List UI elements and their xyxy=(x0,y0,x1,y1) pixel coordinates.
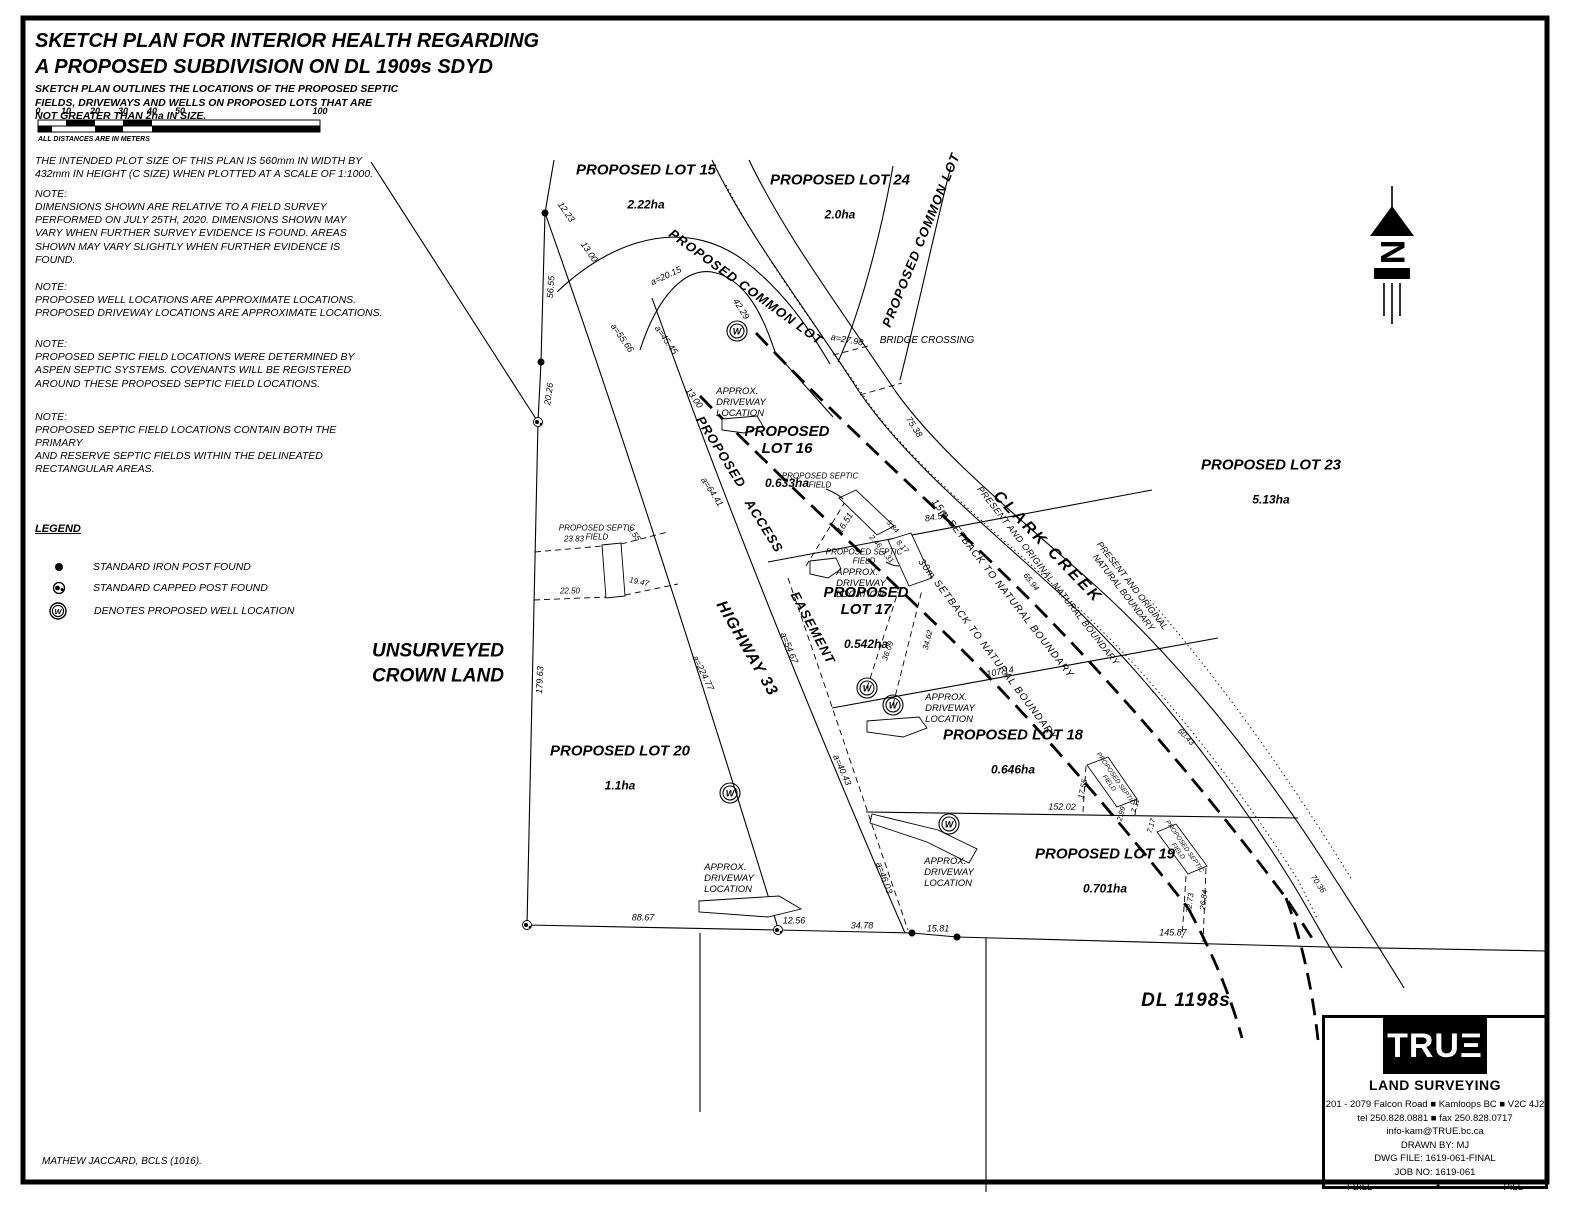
lot20-label: PROPOSED LOT 20 1.1ha xyxy=(550,726,690,811)
lot24-label: PROPOSED LOT 24 2.0ha xyxy=(770,155,910,240)
well-symbol: W xyxy=(727,321,747,341)
svg-text:N: N xyxy=(1373,240,1411,265)
lot-name: PROPOSED LOT 15 xyxy=(576,163,716,180)
legend-item: STANDARD IRON POST FOUND xyxy=(35,559,294,575)
lot16-label: PROPOSED LOT 16 0.633ha xyxy=(744,406,829,508)
measurement: 88.67 xyxy=(632,913,655,924)
measurement: 145.87 xyxy=(1159,928,1187,939)
lot-name: PROPOSED LOT 24 xyxy=(770,173,910,190)
legend: LEGEND STANDARD IRON POST FOUND STANDARD… xyxy=(35,523,294,626)
capped-post-icon xyxy=(51,580,67,596)
svg-text:W: W xyxy=(54,607,62,616)
note-heading: NOTE: xyxy=(35,338,385,351)
well-symbol: W xyxy=(883,695,903,715)
svg-text:W: W xyxy=(945,820,955,830)
lot-name: PROPOSED LOT 18 xyxy=(943,728,1083,745)
measurement: 12.56 xyxy=(783,916,806,927)
firm-email: info-kam@TRUE.bc.ca xyxy=(1325,1126,1545,1137)
note-heading: NOTE: xyxy=(35,281,385,294)
note: NOTE: DIMENSIONS SHOWN ARE RELATIVE TO A… xyxy=(35,188,385,267)
bridge-dashes xyxy=(833,345,902,395)
firm-dwg-file: DWG FILE: 1619-061-FINAL xyxy=(1325,1153,1545,1164)
well-symbol: W xyxy=(939,814,959,834)
note-body: DIMENSIONS SHOWN ARE RELATIVE TO A FIELD… xyxy=(35,201,385,267)
driveway-label-lot19: APPROX. DRIVEWAY LOCATION xyxy=(924,856,974,890)
plan-subtitle: SKETCH PLAN OUTLINES THE LOCATIONS OF TH… xyxy=(35,83,398,124)
iron-post-icon xyxy=(51,559,67,575)
firm-address: 201 - 2079 Falcon Road ■ Kamloops BC ■ V… xyxy=(1325,1099,1545,1110)
sketch-plan-sheet: W W W W W N xyxy=(0,0,1570,1213)
scale-tick: 100 xyxy=(312,106,327,116)
note-body: PROPOSED SEPTIC FIELD LOCATIONS CONTAIN … xyxy=(35,424,385,477)
firm-drawn-by: DRAWN BY: MJ xyxy=(1325,1140,1545,1151)
scale-tick: 0 xyxy=(35,106,40,116)
driveway-label-lot16: APPROX. DRIVEWAY LOCATION xyxy=(716,386,766,420)
lot23-label: PROPOSED LOT 23 5.13ha xyxy=(1201,440,1341,525)
iron-post xyxy=(542,210,549,217)
lot-name: PROPOSED LOT 23 xyxy=(1201,458,1341,475)
lot-area: 1.1ha xyxy=(550,778,690,792)
note: NOTE: PROPOSED SEPTIC FIELD LOCATIONS CO… xyxy=(35,411,385,477)
lot-area: 0.542ha xyxy=(823,637,908,651)
firm-job-no: JOB NO: 1619-061 xyxy=(1325,1167,1545,1178)
scale-tick: 50 xyxy=(175,106,185,116)
measurement: 179.63 xyxy=(534,666,546,694)
legend-item: W DENOTES PROPOSED WELL LOCATION xyxy=(35,601,294,621)
scale-tick: 20 xyxy=(90,106,100,116)
firm-telfax: tel 250.828.0881 ■ fax 250.828.0717 xyxy=(1325,1113,1545,1124)
note-body: PROPOSED SEPTIC FIELD LOCATIONS WERE DET… xyxy=(35,351,385,390)
south-boundary-line xyxy=(527,925,1547,951)
well-symbol: W xyxy=(720,783,740,803)
septic-label-lot16: PROPOSED SEPTIC FIELD xyxy=(782,472,858,491)
lot-area: 0.646ha xyxy=(943,762,1083,776)
crown-land-boundary-line xyxy=(371,162,538,422)
firm-fb: FB:LL xyxy=(1347,1182,1372,1193)
septic-field-lot20 xyxy=(602,543,625,598)
measurement: 23.83 xyxy=(564,534,584,543)
iron-post xyxy=(538,359,545,366)
svg-text:W: W xyxy=(889,701,899,711)
note-heading: NOTE: xyxy=(35,188,385,201)
lot-area: 0.701ha xyxy=(1035,881,1175,895)
lot-name: PROPOSED LOT 20 xyxy=(550,744,690,761)
bullet-icon: ■ xyxy=(1436,1184,1440,1190)
plan-title-line1: SKETCH PLAN FOR INTERIOR HEALTH REGARDIN… xyxy=(35,30,539,53)
surveyor-signature: MATHEW JACCARD, BCLS (1016). xyxy=(42,1156,202,1167)
well-symbol: W xyxy=(857,678,877,698)
title-block: TRUΞ LAND SURVEYING 201 - 2079 Falcon Ro… xyxy=(1322,1015,1548,1189)
lot-name: PROPOSED LOT 16 xyxy=(744,424,829,458)
driveway-lot20 xyxy=(699,896,801,917)
svg-text:W: W xyxy=(726,789,736,799)
notes-block: NOTE: DIMENSIONS SHOWN ARE RELATIVE TO A… xyxy=(35,188,385,490)
scale-tick: 40 xyxy=(147,106,157,116)
measurement: 22.50 xyxy=(560,586,580,595)
svg-text:W: W xyxy=(733,327,743,337)
firm-name: LAND SURVEYING xyxy=(1325,1077,1545,1093)
scale-tick: 30 xyxy=(118,106,128,116)
lot19-label: PROPOSED LOT 19 0.701ha xyxy=(1035,829,1175,914)
capped-post xyxy=(523,921,532,930)
legend-item-label: DENOTES PROPOSED WELL LOCATION xyxy=(94,605,294,617)
iron-post xyxy=(909,930,916,937)
setback-continuation-2 xyxy=(1188,908,1242,1038)
lot-area: 2.0ha xyxy=(770,207,910,221)
legend-item-label: STANDARD CAPPED POST FOUND xyxy=(93,582,268,594)
driveway-label-lot18: APPROX. DRIVEWAY LOCATION xyxy=(925,692,975,726)
scale-caption: ALL DISTANCES ARE IN METERS xyxy=(38,136,150,143)
bridge-crossing-label: BRIDGE CROSSING xyxy=(880,335,974,347)
lot-area: 2.22ha xyxy=(576,197,716,211)
scale-tick: 10 xyxy=(61,106,71,116)
note-body: PROPOSED WELL LOCATIONS ARE APPROXIMATE … xyxy=(35,294,385,320)
proposed-well-icon: W xyxy=(48,601,68,621)
measurement: 15.81 xyxy=(927,924,950,935)
measurement: 56.55 xyxy=(545,275,557,298)
firm-p: P:LL xyxy=(1503,1182,1523,1193)
plot-size-note: THE INTENDED PLOT SIZE OF THIS PLAN IS 5… xyxy=(35,155,373,181)
logo-text: TRUΞ xyxy=(1387,1027,1483,1066)
measurement: 34.78 xyxy=(851,921,874,932)
lot18-19-boundary xyxy=(866,812,1298,818)
legend-item-label: STANDARD IRON POST FOUND xyxy=(93,561,251,573)
capped-post xyxy=(774,926,783,935)
driveway-label-lot20: APPROX. DRIVEWAY LOCATION xyxy=(704,862,754,896)
lot-area: 5.13ha xyxy=(1201,492,1341,506)
driveway-lot18 xyxy=(867,717,927,737)
iron-post xyxy=(954,934,961,941)
north-arrow-icon: N xyxy=(1370,186,1414,324)
driveway-label-lot17: APPROX. DRIVEWAY LOCATION xyxy=(836,567,886,601)
svg-text:W: W xyxy=(863,684,873,694)
plan-title-line2: A PROPOSED SUBDIVISION ON DL 1909s SDYD xyxy=(35,56,493,79)
lot-name: PROPOSED LOT 19 xyxy=(1035,847,1175,864)
true-logo: TRUΞ xyxy=(1383,1018,1487,1074)
firm-fb-p-row: FB:LL ■ P:LL xyxy=(1325,1182,1545,1193)
unsurveyed-crown-land-label: UNSURVEYED CROWN LAND xyxy=(372,639,504,688)
note: NOTE: PROPOSED WELL LOCATIONS ARE APPROX… xyxy=(35,281,385,320)
measurement: 152.02 xyxy=(1048,801,1076,812)
legend-title: LEGEND xyxy=(35,523,294,535)
dl-1198s-label: DL 1198s xyxy=(1141,990,1231,1012)
note: NOTE: PROPOSED SEPTIC FIELD LOCATIONS WE… xyxy=(35,338,385,391)
note-heading: NOTE: xyxy=(35,411,385,424)
legend-item: STANDARD CAPPED POST FOUND xyxy=(35,580,294,596)
capped-post xyxy=(534,418,543,427)
lot15-label: PROPOSED LOT 15 2.22ha xyxy=(576,145,716,230)
